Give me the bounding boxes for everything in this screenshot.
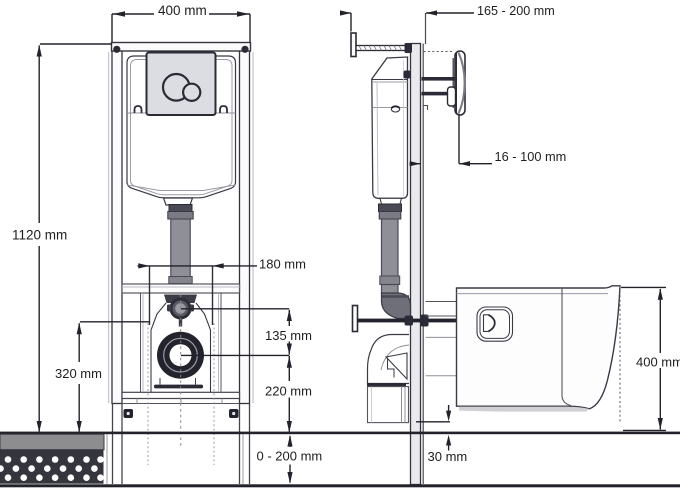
svg-text:1120 mm: 1120 mm [12, 227, 67, 242]
svg-text:180 mm: 180 mm [259, 256, 306, 271]
svg-text:400 mm: 400 mm [158, 3, 207, 18]
svg-text:400 mm: 400 mm [636, 354, 680, 369]
svg-text:30 mm: 30 mm [428, 449, 468, 464]
svg-text:220 mm: 220 mm [265, 384, 312, 399]
svg-text:165 - 200 mm: 165 - 200 mm [477, 4, 555, 18]
svg-text:320 mm: 320 mm [55, 366, 102, 381]
svg-text:0 - 200 mm: 0 - 200 mm [257, 449, 323, 464]
svg-text:135 mm: 135 mm [265, 328, 312, 343]
svg-text:16 - 100 mm: 16 - 100 mm [495, 149, 567, 164]
